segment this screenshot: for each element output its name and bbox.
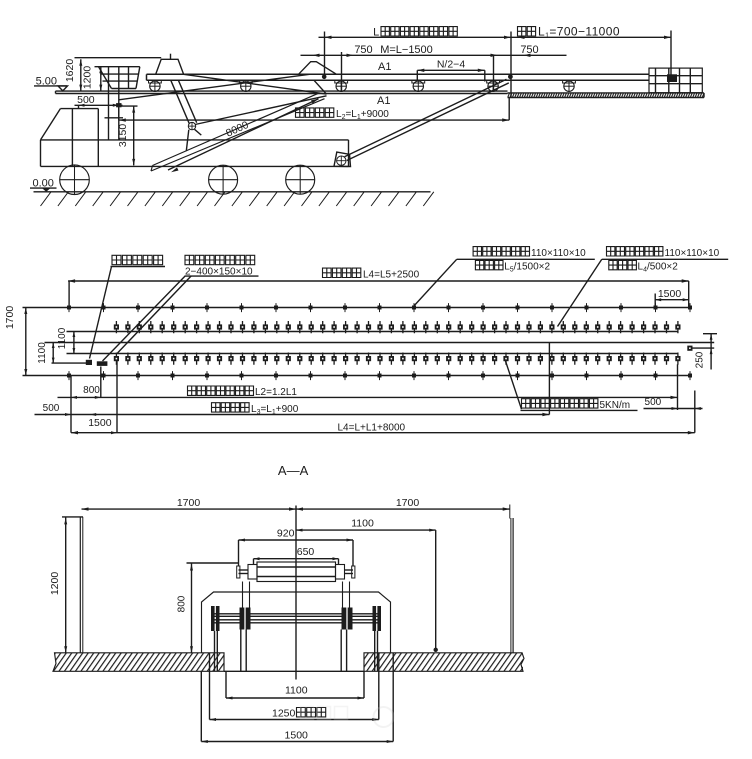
svg-text:1100: 1100: [351, 518, 374, 530]
svg-text:N/2−4: N/2−4: [437, 59, 465, 71]
svg-text:L2=1.2L1: L2=1.2L1: [255, 387, 297, 398]
svg-text:500: 500: [77, 94, 95, 106]
svg-text:L1=700−11000: L1=700−11000: [538, 25, 620, 40]
svg-text:1500: 1500: [88, 417, 112, 429]
svg-text:1100: 1100: [57, 327, 68, 349]
svg-text:1700: 1700: [177, 497, 201, 509]
svg-text:110×110×10: 110×110×10: [665, 248, 720, 259]
svg-text:M=L−1500: M=L−1500: [380, 44, 433, 56]
svg-text:A1: A1: [377, 95, 390, 107]
svg-text:1200: 1200: [49, 572, 61, 596]
svg-text:920: 920: [277, 528, 295, 540]
svg-text:650: 650: [297, 546, 315, 558]
svg-text:L4/500×2: L4/500×2: [638, 262, 679, 274]
svg-text:800: 800: [83, 385, 100, 396]
svg-text:250: 250: [694, 351, 705, 368]
svg-text:1700: 1700: [396, 497, 420, 509]
svg-text:1500: 1500: [658, 288, 682, 300]
svg-text:L4=L+L1+8000: L4=L+L1+8000: [338, 423, 406, 434]
svg-text:1620: 1620: [64, 59, 76, 83]
svg-text:L2=L1+9000: L2=L1+9000: [336, 109, 389, 121]
svg-text:1200: 1200: [82, 66, 94, 90]
svg-text:750: 750: [354, 44, 372, 56]
svg-text:1100: 1100: [37, 342, 48, 364]
svg-text:1250: 1250: [272, 708, 296, 720]
svg-text:500: 500: [645, 397, 662, 408]
svg-text:3150: 3150: [117, 124, 129, 148]
svg-text:750: 750: [520, 44, 538, 56]
svg-text:1700: 1700: [4, 306, 16, 330]
svg-text:800: 800: [177, 595, 188, 612]
svg-text:1100: 1100: [285, 685, 308, 697]
svg-text:110×110×10: 110×110×10: [531, 248, 586, 259]
svg-text:5KN/m: 5KN/m: [600, 400, 631, 411]
svg-text:L4=L5+2500: L4=L5+2500: [363, 269, 420, 280]
svg-text:L3=L1+900: L3=L1+900: [251, 404, 299, 416]
svg-text:A—A: A—A: [278, 463, 309, 478]
svg-text:1500: 1500: [285, 730, 309, 742]
svg-text:500: 500: [43, 403, 60, 414]
svg-text:A1: A1: [378, 61, 391, 73]
svg-text:L: L: [373, 27, 379, 39]
svg-text:L5/1500×2: L5/1500×2: [504, 262, 550, 274]
